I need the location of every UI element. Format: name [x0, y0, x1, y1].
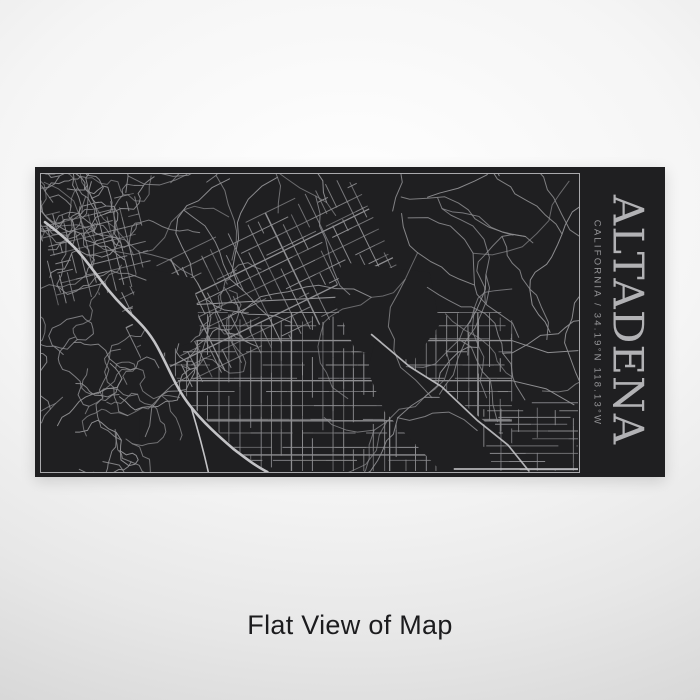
engraved-panel: CALIFORNIA / 34.19°N 118.13°W ALTADENA	[35, 167, 665, 477]
map-subtitle-label: CALIFORNIA / 34.19°N 118.13°W	[592, 220, 603, 426]
view-caption: Flat View of Map	[0, 610, 700, 641]
page-background: CALIFORNIA / 34.19°N 118.13°W ALTADENA F…	[0, 0, 700, 700]
map-frame	[40, 173, 580, 473]
street-map-graphic	[41, 174, 579, 472]
map-title-label: ALTADENA	[604, 195, 653, 445]
